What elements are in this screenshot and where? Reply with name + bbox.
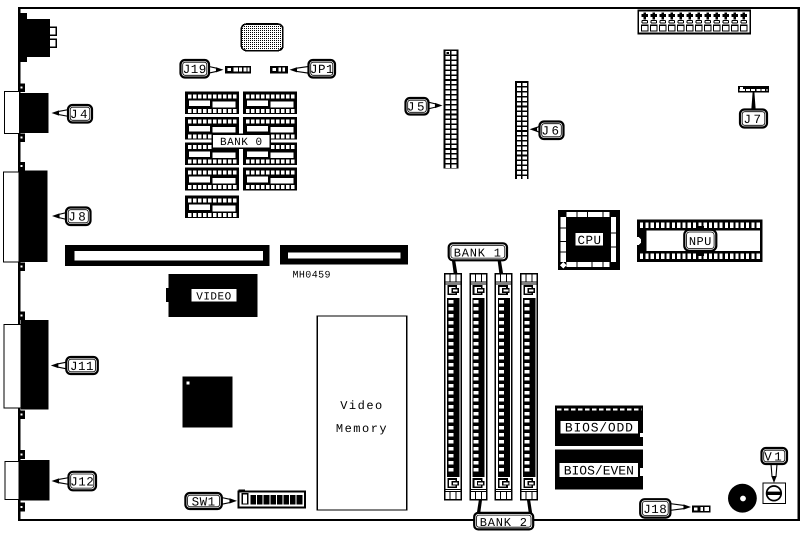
svg-text:BANK 1: BANK 1 [454,247,502,261]
svg-text:J8: J8 [68,211,88,225]
svg-text:J7: J7 [743,113,763,127]
svg-text:J11: J11 [70,360,94,374]
svg-text:BANK 2: BANK 2 [480,516,528,530]
svg-text:BIOS/ODD: BIOS/ODD [565,421,634,436]
svg-text:VIDEO: VIDEO [196,291,232,303]
svg-text:J5: J5 [407,101,427,115]
svg-text:BANK 0: BANK 0 [220,137,263,149]
svg-text:J6: J6 [541,125,561,139]
svg-text:SW1: SW1 [192,495,216,509]
svg-text:J4: J4 [70,108,90,122]
svg-text:NPU: NPU [689,235,712,249]
svg-text:V1: V1 [764,450,784,464]
svg-text:J19: J19 [183,63,207,77]
svg-text:J18: J18 [643,503,667,517]
svg-text:JP1: JP1 [310,63,334,77]
svg-text:J12: J12 [70,476,94,490]
svg-text:Memory: Memory [336,422,388,436]
svg-text:Video: Video [340,399,384,413]
svg-text:MH0459: MH0459 [293,271,331,282]
svg-text:CPU: CPU [577,234,601,248]
svg-text:BIOS/EVEN: BIOS/EVEN [564,464,634,479]
